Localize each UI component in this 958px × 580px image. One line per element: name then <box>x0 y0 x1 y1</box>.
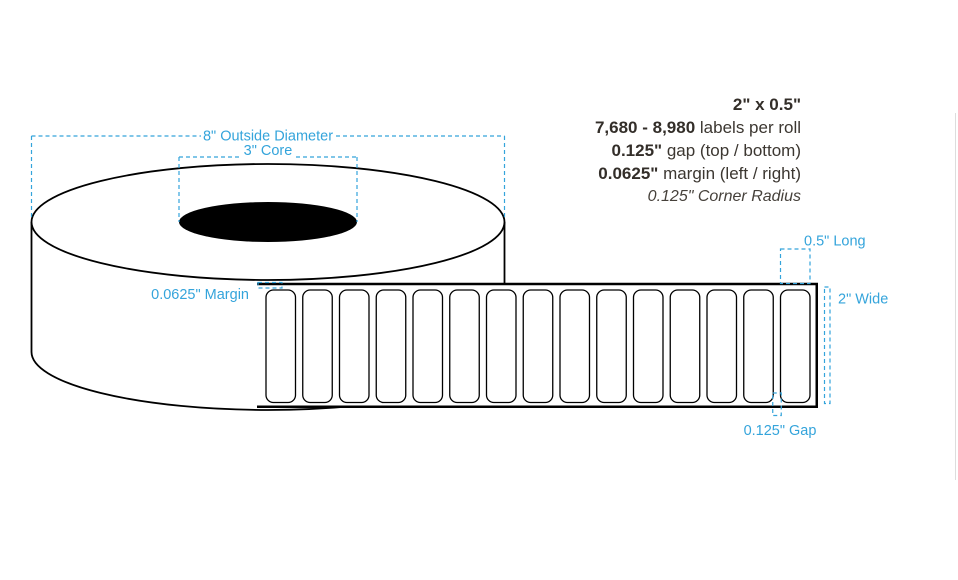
label-cell <box>303 290 333 403</box>
label-cell <box>487 290 517 403</box>
label-cell <box>634 290 664 403</box>
product-specs: 2" x 0.5" 7,680 - 8,980 labels per roll … <box>595 93 801 208</box>
label-cell <box>670 290 700 403</box>
spec-gap-suffix: gap (top / bottom) <box>662 141 801 160</box>
long-label: 0.5" Long <box>804 234 866 250</box>
label-cell <box>744 290 774 403</box>
spec-labels-range: 7,680 - 8,980 <box>595 118 695 137</box>
long-dim-box <box>781 249 811 284</box>
label-cell <box>781 290 811 403</box>
spec-corner-radius: 0.125" Corner Radius <box>595 185 801 208</box>
roll-diagram-svg: 8" Outside Diameter 3" Core 0.0625" Marg… <box>0 0 958 580</box>
spec-size-line: 2" x 0.5" <box>595 93 801 116</box>
spec-size: 2" x 0.5" <box>733 95 801 114</box>
spec-gap-value: 0.125" <box>611 141 662 160</box>
gap-label: 0.125" Gap <box>744 423 817 439</box>
spec-margin-value: 0.0625" <box>598 164 658 183</box>
spec-margin-line: 0.0625" margin (left / right) <box>595 162 801 185</box>
spec-gap-line: 0.125" gap (top / bottom) <box>595 139 801 162</box>
label-cell <box>413 290 443 403</box>
margin-label: 0.0625" Margin <box>151 287 249 303</box>
label-cell <box>266 290 296 403</box>
core-label: 3" Core <box>244 143 293 159</box>
label-cell <box>523 290 553 403</box>
label-roll-diagram-page: 8" Outside Diameter 3" Core 0.0625" Marg… <box>0 0 958 580</box>
label-cell <box>597 290 627 403</box>
spec-margin-suffix: margin (left / right) <box>658 164 801 183</box>
label-cell <box>450 290 480 403</box>
roll-core-hole <box>179 202 357 242</box>
label-cell <box>376 290 406 403</box>
wide-label: 2" Wide <box>838 292 888 308</box>
label-cell <box>340 290 370 403</box>
right-column-divider <box>955 113 956 480</box>
label-cell <box>560 290 590 403</box>
spec-labels-line: 7,680 - 8,980 labels per roll <box>595 116 801 139</box>
label-cell <box>707 290 737 403</box>
spec-labels-suffix: labels per roll <box>695 118 801 137</box>
wide-dim-box <box>825 287 831 404</box>
labels-group <box>266 290 810 403</box>
